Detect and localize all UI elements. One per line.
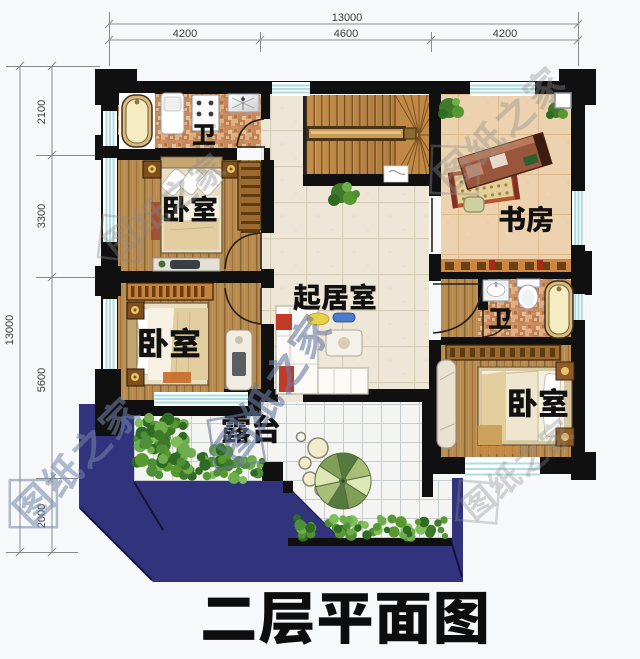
svg-text:13000: 13000 (4, 315, 16, 346)
svg-text:4600: 4600 (334, 28, 358, 40)
svg-text:3300: 3300 (36, 204, 48, 228)
svg-text:4200: 4200 (493, 28, 517, 40)
svg-text:5600: 5600 (36, 368, 48, 392)
svg-text:13000: 13000 (332, 12, 363, 24)
svg-text:4200: 4200 (173, 28, 197, 40)
svg-text:2100: 2100 (36, 100, 48, 124)
